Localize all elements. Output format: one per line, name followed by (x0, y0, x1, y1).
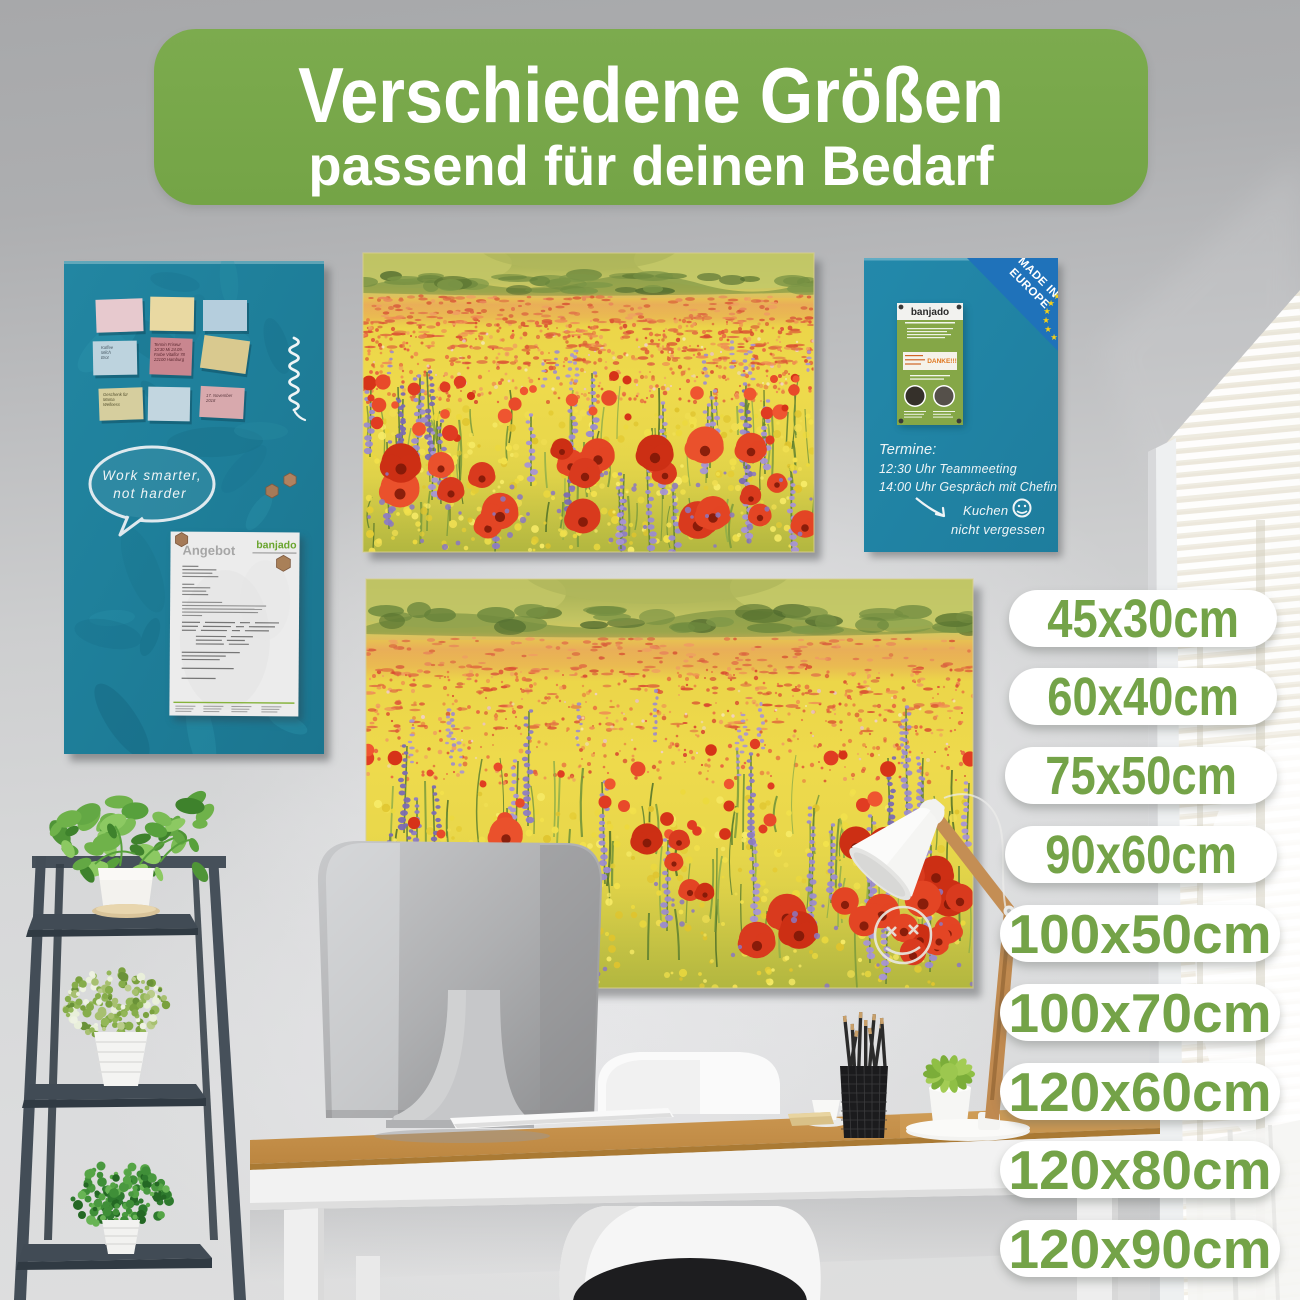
svg-text:Work smarter,: Work smarter, (102, 468, 202, 483)
svg-text:Angebot: Angebot (182, 543, 235, 558)
svg-text:★: ★ (1044, 324, 1052, 334)
svg-text:DANKE!!!: DANKE!!! (927, 358, 957, 365)
svg-text:★: ★ (1042, 315, 1050, 325)
svg-text:nicht vergessen: nicht vergessen (951, 522, 1045, 537)
svg-text:14:00 Uhr Gespräch mit Chefin: 14:00 Uhr Gespräch mit Chefin (879, 480, 1057, 494)
svg-text:Brot: Brot (101, 355, 110, 360)
svg-text:22100 Hamburg: 22100 Hamburg (153, 357, 185, 362)
svg-text:Termine:: Termine: (879, 442, 936, 458)
svg-text:2018: 2018 (205, 398, 216, 403)
svg-text:not harder: not harder (113, 486, 187, 501)
svg-text:12:30 Uhr Teammeeting: 12:30 Uhr Teammeeting (879, 462, 1017, 476)
svg-text:banjado: banjado (911, 307, 949, 318)
svg-text:Kuchen: Kuchen (963, 503, 1008, 518)
svg-text:Wellness: Wellness (103, 402, 121, 407)
svg-text:banjado: banjado (256, 539, 296, 551)
